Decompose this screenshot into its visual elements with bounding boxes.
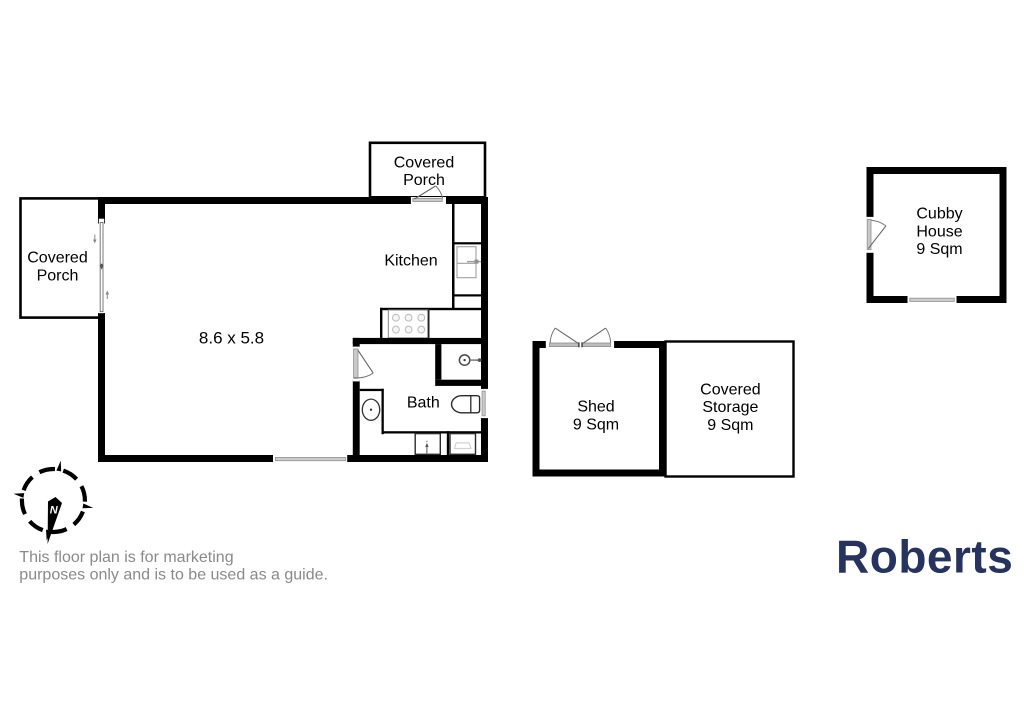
svg-text:9 Sqm: 9 Sqm: [707, 417, 753, 434]
svg-text:Roberts: Roberts: [836, 531, 1013, 583]
svg-text:Bath: Bath: [407, 395, 440, 412]
svg-text:House: House: [916, 223, 962, 240]
svg-text:9 Sqm: 9 Sqm: [573, 417, 619, 434]
svg-text:Covered: Covered: [700, 381, 760, 398]
svg-text:Porch: Porch: [403, 172, 445, 189]
svg-text:N: N: [50, 505, 59, 517]
svg-text:8.6 x 5.8: 8.6 x 5.8: [199, 328, 264, 347]
svg-text:Cubby: Cubby: [916, 206, 962, 223]
svg-text:Porch: Porch: [37, 268, 79, 285]
svg-text:Covered: Covered: [394, 155, 454, 172]
svg-text:Storage: Storage: [702, 399, 758, 416]
svg-text:purposes only and is to be use: purposes only and is to be used as a gui…: [19, 566, 328, 583]
svg-text:Shed: Shed: [577, 399, 614, 416]
svg-text:Covered: Covered: [27, 250, 87, 267]
svg-text:9 Sqm: 9 Sqm: [916, 241, 962, 258]
svg-text:This floor plan is for marketi: This floor plan is for marketing: [19, 549, 233, 566]
svg-text:Kitchen: Kitchen: [384, 253, 437, 270]
